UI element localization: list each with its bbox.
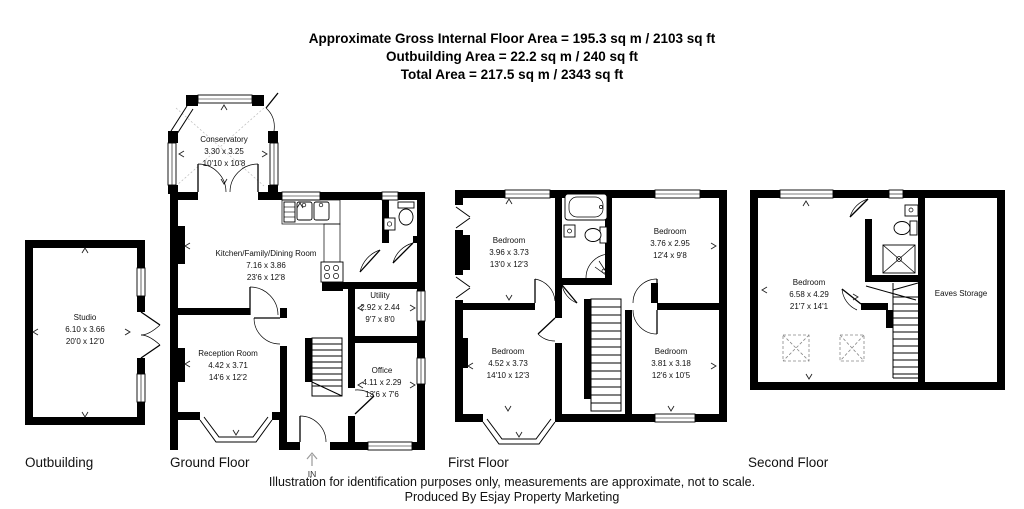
svg-text:2.92 x 2.44: 2.92 x 2.44	[360, 303, 400, 312]
wc-door	[393, 243, 413, 263]
french-doors	[141, 312, 160, 358]
bedroom4-door	[633, 310, 657, 334]
basin-icon	[564, 225, 575, 237]
svg-text:Bedroom: Bedroom	[492, 347, 525, 356]
entrance-door: IN	[300, 416, 326, 479]
second-labels: Bedroom 6.58 x 4.29 21'7 x 14'1 Eaves St…	[789, 278, 988, 311]
ground-labels: Kitchen/Family/Dining Room 7.16 x 3.86 2…	[198, 249, 402, 399]
bedroom1-door	[535, 279, 555, 303]
stairs	[312, 338, 342, 396]
kitchen-reception-door	[250, 287, 278, 315]
reception-door	[254, 318, 280, 344]
outbuilding-plan: Studio 6.10 x 3.66 20'0 x 12'0	[20, 236, 152, 438]
shower-room-fixtures	[883, 205, 918, 273]
toilet-icon	[910, 221, 917, 235]
shower-room-door	[850, 199, 868, 217]
footer-producer: Produced By Esjay Property Marketing	[0, 490, 1024, 504]
studio-label: Studio 6.10 x 3.66 20'0 x 12'0	[65, 313, 105, 346]
caption-second-floor: Second Floor	[748, 455, 828, 470]
first-stairs	[591, 299, 621, 411]
svg-text:Eaves Storage: Eaves Storage	[935, 289, 988, 298]
svg-text:12'6 x 10'5: 12'6 x 10'5	[652, 371, 691, 380]
first-bay-window	[483, 419, 555, 444]
skylights	[783, 335, 864, 361]
svg-text:3.96 x 3.73: 3.96 x 3.73	[489, 248, 529, 257]
svg-text:12'4 x 9'8: 12'4 x 9'8	[653, 251, 687, 260]
toilet-icon	[398, 202, 414, 208]
svg-text:Office: Office	[372, 366, 393, 375]
svg-text:13'0 x 12'3: 13'0 x 12'3	[490, 260, 529, 269]
caption-outbuilding: Outbuilding	[25, 455, 93, 470]
second-floor-plan: Bedroom 6.58 x 4.29 21'7 x 14'1 Eaves St…	[743, 183, 1015, 401]
basin-icon	[905, 205, 918, 216]
svg-text:6.10 x 3.66: 6.10 x 3.66	[65, 325, 105, 334]
floorplan-page: Approximate Gross Internal Floor Area = …	[0, 0, 1024, 509]
conservatory-door	[266, 93, 278, 131]
conservatory-label: Conservatory 3.30 x 3.25 10'10 x 10'8	[200, 135, 248, 168]
svg-text:Conservatory: Conservatory	[200, 135, 248, 144]
svg-text:23'6 x 12'8: 23'6 x 12'8	[247, 273, 286, 282]
header-line-1: Approximate Gross Internal Floor Area = …	[0, 31, 1024, 46]
svg-text:3.81 x 3.18: 3.81 x 3.18	[651, 359, 691, 368]
svg-text:Bedroom: Bedroom	[655, 347, 688, 356]
svg-text:14'6 x 12'2: 14'6 x 12'2	[209, 373, 248, 382]
footer-disclaimer: Illustration for identification purposes…	[0, 475, 1024, 489]
svg-text:6.58 x 4.29: 6.58 x 4.29	[789, 290, 829, 299]
svg-text:3.76 x 2.95: 3.76 x 2.95	[650, 239, 690, 248]
svg-text:4.11 x 2.29: 4.11 x 2.29	[363, 378, 403, 387]
svg-text:Bedroom: Bedroom	[793, 278, 826, 287]
bay-window	[200, 417, 272, 442]
svg-text:10'10 x 10'8: 10'10 x 10'8	[203, 159, 246, 168]
svg-text:4.52 x 3.73: 4.52 x 3.73	[488, 359, 528, 368]
svg-text:4.42 x 3.71: 4.42 x 3.71	[208, 361, 248, 370]
ground-floor-plan: Conservatory 3.30 x 3.25 10'10 x 10'8	[160, 86, 440, 486]
basin-icon	[384, 218, 395, 230]
caption-first-floor: First Floor	[448, 455, 509, 470]
svg-text:21'7 x 14'1: 21'7 x 14'1	[790, 302, 829, 311]
svg-text:Bedroom: Bedroom	[493, 236, 526, 245]
svg-text:3.30 x 3.25: 3.30 x 3.25	[204, 147, 244, 156]
header-line-3: Total Area = 217.5 sq m / 2343 sq ft	[0, 67, 1024, 82]
svg-text:20'0 x 12'0: 20'0 x 12'0	[66, 337, 105, 346]
shower-tray-icon	[883, 245, 915, 273]
svg-text:Kitchen/Family/Dining Room: Kitchen/Family/Dining Room	[216, 249, 317, 258]
caption-ground-floor: Ground Floor	[170, 455, 250, 470]
second-stairs	[893, 283, 918, 378]
svg-text:Studio: Studio	[74, 313, 97, 322]
conservatory-double-doors	[198, 164, 258, 192]
hob-icon	[321, 262, 343, 282]
svg-text:Reception Room: Reception Room	[198, 349, 258, 358]
svg-text:13'6 x 7'6: 13'6 x 7'6	[365, 390, 399, 399]
header-line-2: Outbuilding Area = 22.2 sq m / 240 sq ft	[0, 49, 1024, 64]
bath-icon	[565, 194, 607, 220]
bathroom-fixtures	[564, 194, 610, 278]
sink-icon	[314, 202, 329, 220]
lobby-door	[360, 250, 380, 272]
svg-text:Utility: Utility	[370, 291, 390, 300]
svg-text:7.16 x 3.86: 7.16 x 3.86	[246, 261, 286, 270]
first-floor-plan: Bedroom 3.96 x 3.73 13'0 x 12'3 Bedroom …	[443, 183, 735, 473]
bedroom3-door	[538, 318, 555, 341]
svg-text:9'7 x 8'0: 9'7 x 8'0	[365, 315, 395, 324]
svg-text:14'10 x 12'3: 14'10 x 12'3	[487, 371, 530, 380]
bathroom-door	[562, 285, 577, 303]
svg-text:Bedroom: Bedroom	[654, 227, 687, 236]
